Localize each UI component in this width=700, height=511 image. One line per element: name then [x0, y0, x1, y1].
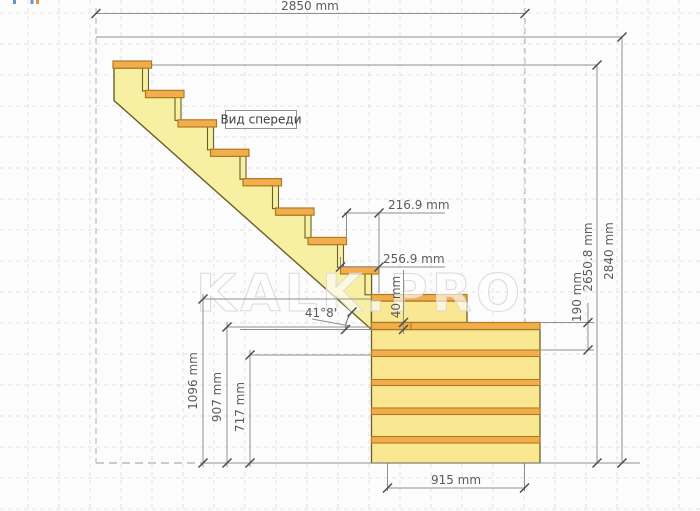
label-step-run: 216.9 mm [388, 198, 450, 212]
clipped-browser-icons [13, 0, 39, 4]
label-717: 717 mm [233, 382, 247, 432]
label-stair-angle: 41°8' [305, 306, 337, 320]
clipped-icon [36, 0, 39, 4]
view-label-text: Вид спереди [220, 113, 301, 127]
label-1096: 1096 mm [186, 352, 200, 410]
label-step-rise: 190 mm [570, 272, 584, 322]
clipped-icon [13, 0, 16, 4]
view-label-box: Вид спереди [220, 111, 301, 129]
grid-lines [0, 0, 700, 511]
stair-drawing-canvas: KALK.PRO [0, 0, 700, 511]
label-platform-width: 915 mm [431, 473, 481, 487]
label-tread-thickness: 40 mm [389, 276, 403, 318]
label-tread-depth: 256.9 mm [383, 252, 445, 266]
kalkpro-watermark: KALK.PRO [196, 264, 524, 324]
clipped-icon [31, 0, 34, 4]
dimension-lines [96, 8, 640, 491]
dimension-ticks [92, 9, 627, 493]
label-907: 907 mm [210, 372, 224, 422]
label-total-width: 2850 mm [281, 0, 339, 13]
label-total-height: 2840 mm [602, 222, 616, 280]
staircase-figure [113, 61, 540, 463]
